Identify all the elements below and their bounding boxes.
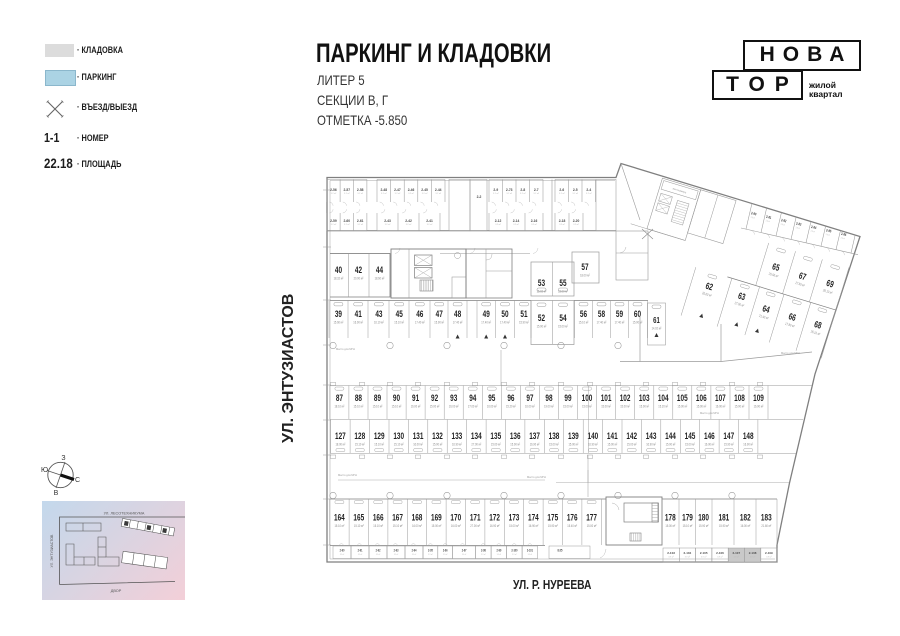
svg-text:15.00 м²: 15.00 м² (696, 404, 706, 409)
svg-text:2-96: 2-96 (443, 548, 448, 553)
svg-text:55: 55 (559, 278, 567, 288)
svg-text:16.00 м²: 16.00 м² (525, 404, 535, 409)
svg-text:50: 50 (501, 309, 509, 319)
svg-text:106: 106 (696, 393, 707, 403)
svg-text:15.00 м²: 15.00 м² (491, 442, 501, 447)
svg-text:2-73: 2-73 (506, 188, 513, 192)
svg-text:15.90 м²: 15.90 м² (434, 320, 444, 325)
svg-text:16.00 м²: 16.00 м² (413, 442, 423, 447)
svg-text:2-47: 2-47 (394, 188, 401, 192)
svg-text:15.00 м²: 15.00 м² (563, 404, 573, 409)
svg-text:140: 140 (588, 431, 599, 441)
svg-text:131: 131 (413, 431, 424, 441)
svg-text:2-80: 2-80 (751, 211, 757, 217)
svg-text:15.00 м²: 15.00 м² (433, 442, 443, 447)
svg-text:2-101: 2-101 (527, 548, 533, 553)
svg-text:Место для МГН: Место для МГН (700, 411, 719, 415)
svg-text:2-100: 2-100 (511, 548, 517, 553)
svg-text:15.90 м²: 15.90 м² (719, 523, 729, 528)
svg-text:27.00 м²: 27.00 м² (468, 404, 478, 409)
svg-text:2-107: 2-107 (732, 551, 740, 555)
svg-text:136: 136 (510, 431, 521, 441)
svg-text:Место для МГН: Место для МГН (781, 351, 800, 355)
svg-text:15.00 м²: 15.00 м² (607, 442, 617, 447)
svg-text:18.32 м²: 18.32 м² (334, 276, 344, 281)
svg-text:183: 183 (761, 512, 772, 522)
svg-text:2-106: 2-106 (716, 551, 724, 555)
svg-text:16.00 м²: 16.00 м² (740, 523, 750, 528)
svg-text:17.40 м²: 17.40 м² (597, 320, 607, 325)
svg-text:100: 100 (582, 393, 593, 403)
svg-text:3.9 м²: 3.9 м² (358, 553, 363, 556)
svg-text:15.00 м²: 15.00 м² (633, 320, 643, 325)
svg-text:2-9: 2-9 (493, 188, 498, 192)
svg-text:2-104: 2-104 (684, 551, 692, 555)
svg-text:2-85: 2-85 (826, 228, 832, 234)
svg-text:181: 181 (719, 512, 730, 522)
svg-text:2-45: 2-45 (421, 188, 428, 192)
svg-text:43: 43 (375, 309, 383, 319)
svg-text:2-44: 2-44 (435, 188, 442, 192)
svg-text:27.00 м²: 27.00 м² (470, 523, 480, 528)
svg-text:21.60 м²: 21.60 м² (761, 523, 771, 528)
svg-text:2-99: 2-99 (497, 548, 502, 553)
svg-text:132: 132 (432, 431, 443, 441)
svg-text:15.20 м²: 15.20 м² (658, 404, 668, 409)
svg-text:3.9 м²: 3.9 м² (376, 553, 381, 556)
svg-text:16.90 м²: 16.90 м² (646, 442, 656, 447)
svg-text:177: 177 (586, 512, 597, 522)
svg-text:3.9 м²: 3.9 м² (750, 556, 756, 559)
svg-text:2-2: 2-2 (477, 195, 482, 199)
svg-text:92: 92 (431, 393, 439, 403)
svg-text:2-93: 2-93 (394, 548, 399, 553)
svg-text:3.2 м²: 3.2 м² (572, 192, 578, 195)
svg-text:17.40 м²: 17.40 м² (481, 320, 491, 325)
svg-text:3.2 м²: 3.2 м² (408, 192, 414, 195)
svg-text:39: 39 (335, 309, 343, 319)
svg-text:15.00 м²: 15.00 м² (665, 523, 675, 528)
svg-text:Место для МГН: Место для МГН (338, 473, 357, 477)
svg-text:3.2 м²: 3.2 м² (559, 192, 565, 195)
svg-text:16.00 м²: 16.00 м² (353, 320, 363, 325)
svg-text:2-18: 2-18 (559, 219, 566, 223)
svg-text:Место для МГН: Место для МГН (336, 347, 355, 351)
svg-text:3.2 м²: 3.2 м² (493, 192, 499, 195)
svg-text:2-94: 2-94 (412, 548, 417, 553)
svg-text:3.9 м²: 3.9 м² (734, 556, 740, 559)
svg-text:2-58: 2-58 (357, 188, 364, 192)
svg-text:104: 104 (658, 393, 669, 403)
svg-text:107: 107 (715, 393, 726, 403)
svg-text:2-6: 2-6 (559, 188, 564, 192)
svg-text:3.9 м²: 3.9 м² (394, 553, 399, 556)
svg-text:2-109: 2-109 (765, 551, 773, 555)
svg-text:3.2 м²: 3.2 м² (586, 192, 592, 195)
svg-text:3.2 м²: 3.2 м² (533, 192, 539, 195)
svg-text:2-41: 2-41 (426, 219, 433, 223)
svg-text:147: 147 (723, 431, 734, 441)
svg-text:2-43: 2-43 (384, 219, 391, 223)
svg-text:2-46: 2-46 (408, 188, 415, 192)
svg-text:95: 95 (488, 393, 496, 403)
svg-text:49: 49 (483, 309, 491, 319)
svg-text:3.9 м²: 3.9 м² (340, 553, 345, 556)
svg-text:15.40 м²: 15.40 м² (567, 523, 577, 528)
svg-text:2-16: 2-16 (531, 219, 538, 223)
svg-text:47: 47 (436, 309, 444, 319)
svg-text:129: 129 (374, 431, 385, 441)
svg-text:15.10 м²: 15.10 м² (355, 442, 365, 447)
svg-text:3.2 м²: 3.2 м² (385, 223, 391, 226)
svg-text:3.2 м²: 3.2 м² (331, 192, 337, 195)
svg-text:15.00 м²: 15.00 м² (537, 324, 547, 329)
svg-text:3.2 м²: 3.2 м² (381, 192, 387, 195)
svg-text:58: 58 (598, 309, 606, 319)
svg-text:8.05: 8.05 (558, 548, 563, 553)
svg-text:2-61: 2-61 (357, 219, 364, 223)
svg-text:18.00 м²: 18.00 м² (335, 442, 345, 447)
svg-text:3.9 м²: 3.9 м² (512, 553, 517, 556)
svg-text:27.00 м²: 27.00 м² (471, 442, 481, 447)
svg-text:15.00 м²: 15.00 м² (558, 324, 568, 329)
svg-text:178: 178 (665, 512, 676, 522)
svg-text:134: 134 (471, 431, 482, 441)
svg-text:59: 59 (616, 309, 624, 319)
svg-text:141: 141 (607, 431, 618, 441)
svg-text:Место для МГН: Место для МГН (527, 475, 546, 479)
svg-text:19.00 м²: 19.00 м² (544, 404, 554, 409)
svg-text:54: 54 (559, 313, 567, 323)
svg-text:175: 175 (547, 512, 558, 522)
svg-text:16.90 м²: 16.90 м² (452, 442, 462, 447)
svg-text:101: 101 (601, 393, 612, 403)
svg-text:2-97: 2-97 (462, 548, 467, 553)
svg-text:15.10 м²: 15.10 м² (334, 523, 344, 528)
svg-text:173: 173 (509, 512, 520, 522)
svg-text:16.00 м²: 16.00 м² (412, 523, 422, 528)
svg-text:16.90 м²: 16.90 м² (530, 442, 540, 447)
svg-text:15.10 м²: 15.10 м² (394, 320, 404, 325)
svg-text:60: 60 (634, 309, 642, 319)
svg-text:15.00 м²: 15.00 м² (430, 404, 440, 409)
svg-text:18.10 м²: 18.10 м² (334, 404, 344, 409)
svg-text:3.9 м²: 3.9 м² (766, 556, 772, 559)
svg-text:18.60 м²: 18.60 м² (375, 276, 385, 281)
svg-text:3.9 м²: 3.9 м² (497, 553, 502, 556)
svg-text:3.2 м²: 3.2 м² (344, 192, 350, 195)
svg-text:98: 98 (545, 393, 553, 403)
svg-text:179: 179 (682, 512, 693, 522)
svg-text:166: 166 (373, 512, 384, 522)
svg-text:172: 172 (489, 512, 500, 522)
svg-text:15.90 м²: 15.90 м² (724, 442, 734, 447)
svg-text:180: 180 (698, 512, 709, 522)
svg-text:2-86: 2-86 (841, 231, 847, 237)
svg-text:3.2 м²: 3.2 м² (344, 223, 350, 226)
svg-text:130: 130 (393, 431, 404, 441)
svg-text:90: 90 (393, 393, 401, 403)
svg-text:3.9 м²: 3.9 м² (717, 556, 723, 559)
svg-text:2-12: 2-12 (495, 219, 502, 223)
svg-text:2-105: 2-105 (700, 551, 708, 555)
svg-text:2-5: 2-5 (573, 188, 578, 192)
svg-text:135: 135 (490, 431, 501, 441)
svg-text:16.10 м²: 16.10 м² (374, 320, 384, 325)
svg-text:2-20: 2-20 (573, 219, 580, 223)
svg-text:105: 105 (677, 393, 688, 403)
svg-text:2-48: 2-48 (380, 188, 387, 192)
svg-text:15.00 м²: 15.00 м² (582, 404, 592, 409)
svg-text:15.00 м²: 15.00 м² (677, 404, 687, 409)
svg-text:170: 170 (450, 512, 461, 522)
svg-text:143: 143 (646, 431, 657, 441)
svg-text:15.20 м²: 15.20 м² (506, 404, 516, 409)
svg-text:165: 165 (353, 512, 364, 522)
svg-text:3.9 м²: 3.9 м² (481, 553, 486, 556)
svg-text:15.10 м²: 15.10 м² (579, 320, 589, 325)
svg-text:3.9 м²: 3.9 м² (462, 553, 467, 556)
svg-text:53: 53 (538, 278, 546, 288)
svg-text:15.10 м²: 15.10 м² (394, 442, 404, 447)
svg-text:2-56: 2-56 (330, 188, 337, 192)
svg-text:2-8: 2-8 (520, 188, 525, 192)
svg-text:41: 41 (355, 309, 363, 319)
svg-text:15.00 м²: 15.00 м² (639, 404, 649, 409)
svg-text:133: 133 (452, 431, 463, 441)
svg-text:46: 46 (416, 309, 424, 319)
svg-text:15.00 м²: 15.00 м² (510, 442, 520, 447)
svg-text:15.10 м²: 15.10 м² (392, 404, 402, 409)
svg-text:40: 40 (335, 265, 343, 275)
svg-text:2-4: 2-4 (586, 188, 591, 192)
svg-text:3.2 м²: 3.2 м² (513, 223, 519, 226)
svg-text:48: 48 (454, 309, 462, 319)
svg-text:3.9 м²: 3.9 м² (701, 556, 707, 559)
svg-text:3.2 м²: 3.2 м² (531, 223, 537, 226)
svg-text:16.90 м²: 16.90 м² (490, 523, 500, 528)
svg-text:2-7: 2-7 (534, 188, 539, 192)
svg-text:3.2 м²: 3.2 м² (422, 192, 428, 195)
svg-text:15.00 м²: 15.00 м² (735, 404, 745, 409)
svg-text:142: 142 (626, 431, 637, 441)
svg-text:3.9 м²: 3.9 м² (685, 556, 691, 559)
svg-text:16.90 м²: 16.90 м² (754, 404, 764, 409)
svg-text:15.00 м²: 15.00 м² (549, 442, 559, 447)
svg-text:182: 182 (740, 512, 751, 522)
svg-text:2-82: 2-82 (781, 218, 787, 224)
svg-text:3.2 м²: 3.2 м² (406, 223, 412, 226)
svg-text:169: 169 (431, 512, 442, 522)
svg-text:2-84: 2-84 (811, 225, 817, 231)
svg-text:15.00 м²: 15.00 м² (558, 289, 568, 294)
svg-text:87: 87 (336, 393, 344, 403)
svg-text:137: 137 (529, 431, 540, 441)
svg-text:89: 89 (374, 393, 382, 403)
svg-text:88: 88 (355, 393, 363, 403)
svg-text:57: 57 (581, 262, 589, 272)
svg-text:16.90 м²: 16.90 м² (588, 442, 598, 447)
svg-text:2-81: 2-81 (766, 214, 772, 220)
svg-text:102: 102 (620, 393, 631, 403)
svg-text:167: 167 (392, 512, 403, 522)
svg-text:94: 94 (469, 393, 477, 403)
svg-text:128: 128 (354, 431, 365, 441)
svg-text:15.60 м²: 15.60 м² (333, 320, 343, 325)
svg-text:16.00 м²: 16.00 м² (449, 404, 459, 409)
svg-text:2-103: 2-103 (667, 551, 675, 555)
svg-text:91: 91 (412, 393, 420, 403)
svg-text:44: 44 (376, 265, 384, 275)
svg-text:138: 138 (549, 431, 560, 441)
svg-text:2-92: 2-92 (376, 548, 381, 553)
svg-text:15.10 м²: 15.10 м² (373, 404, 383, 409)
svg-text:3.2 м²: 3.2 м² (357, 192, 363, 195)
svg-text:127: 127 (335, 431, 346, 441)
svg-text:139: 139 (568, 431, 579, 441)
svg-text:3.2 м²: 3.2 м² (331, 223, 337, 226)
svg-text:42: 42 (355, 265, 363, 275)
svg-text:3.9 м²: 3.9 м² (528, 553, 533, 556)
svg-text:17.40 м²: 17.40 м² (415, 320, 425, 325)
svg-text:61: 61 (653, 315, 660, 325)
svg-text:168: 168 (412, 512, 423, 522)
svg-text:14.92 м²: 14.92 м² (652, 326, 662, 331)
svg-text:16.00 м²: 16.00 м² (487, 404, 497, 409)
svg-text:15.00 м²: 15.00 м² (568, 442, 578, 447)
svg-text:15.00 м²: 15.00 м² (666, 442, 676, 447)
svg-text:15.00 м²: 15.00 м² (587, 523, 597, 528)
svg-text:15.10 м²: 15.10 м² (373, 523, 383, 528)
svg-text:171: 171 (470, 512, 481, 522)
svg-text:3.2 м²: 3.2 м² (506, 192, 512, 195)
svg-text:3.9 м²: 3.9 м² (428, 553, 433, 556)
svg-text:15.00 м²: 15.00 м² (685, 442, 695, 447)
svg-text:144: 144 (665, 431, 676, 441)
svg-text:51: 51 (520, 309, 528, 319)
svg-text:3.9 м²: 3.9 м² (443, 553, 448, 556)
svg-text:15.00 м²: 15.00 м² (509, 523, 519, 528)
svg-text:93: 93 (450, 393, 458, 403)
svg-text:148: 148 (743, 431, 754, 441)
svg-text:16.00 м²: 16.00 м² (451, 523, 461, 528)
svg-text:18.00 м²: 18.00 м² (580, 273, 590, 278)
svg-text:15.00 м²: 15.00 м² (431, 523, 441, 528)
svg-text:174: 174 (528, 512, 539, 522)
svg-text:16.00 м²: 16.00 м² (411, 404, 421, 409)
svg-text:52: 52 (538, 313, 546, 323)
svg-text:15.90 м²: 15.90 м² (699, 523, 709, 528)
svg-text:96: 96 (507, 393, 515, 403)
svg-text:2-59: 2-59 (330, 219, 337, 223)
svg-text:16.90 м²: 16.90 м² (743, 442, 753, 447)
svg-text:3.2 м²: 3.2 м² (559, 223, 565, 226)
svg-text:145: 145 (685, 431, 696, 441)
svg-text:2-83: 2-83 (796, 221, 802, 227)
svg-text:3.9 м²: 3.9 м² (668, 556, 674, 559)
svg-text:15.90 м²: 15.90 м² (548, 523, 558, 528)
svg-text:16.90 м²: 16.90 м² (704, 442, 714, 447)
svg-text:2-57: 2-57 (343, 188, 350, 192)
svg-text:3.9 м²: 3.9 м² (412, 553, 417, 556)
svg-text:2-42: 2-42 (405, 219, 412, 223)
svg-text:17.40 м²: 17.40 м² (453, 320, 463, 325)
svg-text:20.00 м²: 20.00 м² (354, 276, 364, 281)
svg-text:99: 99 (564, 393, 572, 403)
svg-text:15.02 м²: 15.02 м² (537, 289, 547, 294)
svg-text:45: 45 (396, 309, 404, 319)
svg-text:176: 176 (567, 512, 578, 522)
svg-text:2-91: 2-91 (358, 548, 363, 553)
svg-text:146: 146 (704, 431, 715, 441)
svg-text:97: 97 (526, 393, 534, 403)
svg-text:2-90: 2-90 (340, 548, 345, 553)
svg-text:56: 56 (580, 309, 588, 319)
svg-text:3.2 м²: 3.2 м² (573, 223, 579, 226)
svg-text:15.00 м²: 15.00 м² (627, 442, 637, 447)
svg-text:3.2 м²: 3.2 м² (520, 192, 526, 195)
svg-text:164: 164 (334, 512, 345, 522)
svg-text:16.00 м²: 16.00 м² (715, 404, 725, 409)
svg-text:109: 109 (753, 393, 764, 403)
svg-text:108: 108 (734, 393, 745, 403)
svg-text:3.2 м²: 3.2 м² (435, 192, 441, 195)
svg-text:2-60: 2-60 (343, 219, 350, 223)
svg-text:103: 103 (639, 393, 650, 403)
svg-text:3.2 м²: 3.2 м² (495, 223, 501, 226)
svg-text:17.40 м²: 17.40 м² (500, 320, 510, 325)
svg-text:15.00 м²: 15.00 м² (601, 404, 611, 409)
svg-text:15.10 м²: 15.10 м² (354, 523, 364, 528)
svg-text:17.40 м²: 17.40 м² (615, 320, 625, 325)
svg-text:2-108: 2-108 (749, 551, 757, 555)
svg-text:16.90 м²: 16.90 м² (528, 523, 538, 528)
svg-text:2-14: 2-14 (513, 219, 520, 223)
svg-text:15.10 м²: 15.10 м² (374, 442, 384, 447)
svg-text:15.90 м²: 15.90 м² (519, 320, 529, 325)
svg-text:15.00 м²: 15.00 м² (620, 404, 630, 409)
svg-text:2-98: 2-98 (481, 548, 486, 553)
svg-text:15.10 м²: 15.10 м² (683, 523, 693, 528)
svg-text:2-95: 2-95 (428, 548, 433, 553)
svg-text:3.2 м²: 3.2 м² (427, 223, 433, 226)
svg-text:15.10 м²: 15.10 м² (393, 523, 403, 528)
svg-text:15.10 м²: 15.10 м² (353, 404, 363, 409)
svg-text:3.2 м²: 3.2 м² (357, 223, 363, 226)
svg-text:3.2 м²: 3.2 м² (395, 192, 401, 195)
